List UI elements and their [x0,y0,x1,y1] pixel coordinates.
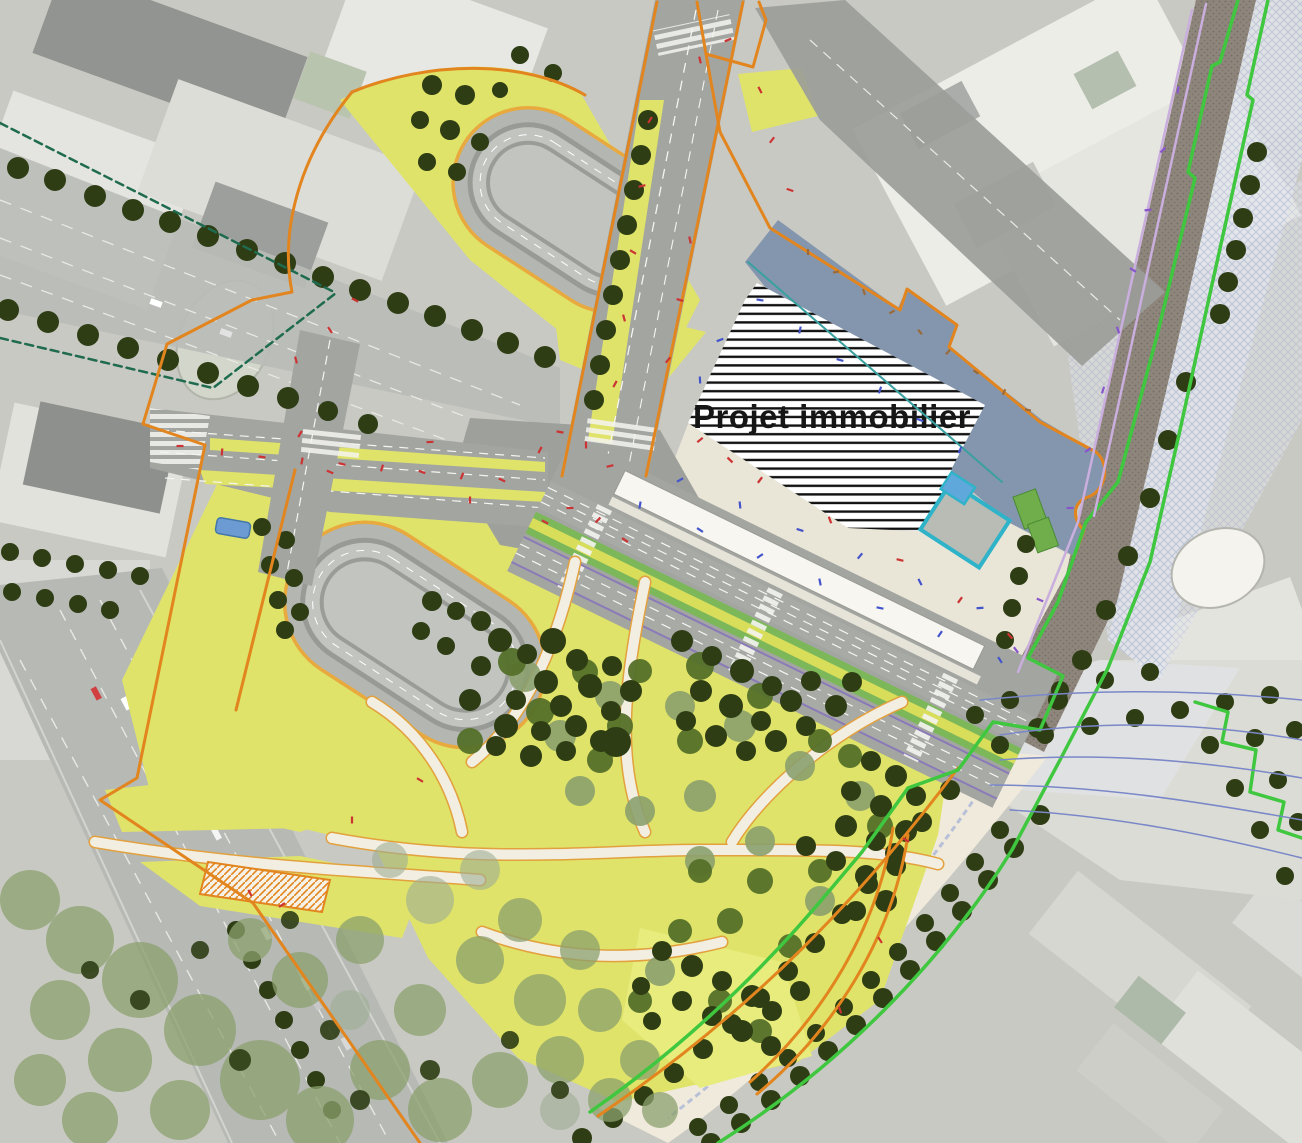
tree [0,870,60,930]
tree [790,981,810,1001]
tree [101,601,119,619]
tree [150,1080,210,1140]
tree [1218,272,1238,292]
tree [889,943,907,961]
tree [578,988,622,1032]
tree [44,169,66,191]
tree [511,46,529,64]
tree [620,680,642,702]
tree [596,320,616,340]
tree [861,751,881,771]
tree [471,611,491,631]
tree [447,602,465,620]
tree [281,911,299,929]
annotation-tick [585,441,587,448]
tree [7,157,29,179]
tree [422,591,442,611]
tree [631,145,651,165]
tree [492,82,508,98]
tree [916,914,934,932]
tree [1247,142,1267,162]
tree [672,991,692,1011]
tree [440,120,460,140]
tree [602,656,622,676]
tree [30,980,90,1040]
tree [498,898,542,942]
tree [422,75,442,95]
tree [358,414,378,434]
tree [46,906,114,974]
tree [534,670,558,694]
tree [762,676,782,696]
tree [705,725,727,747]
tree [472,1052,528,1108]
annotation-tick [426,441,433,444]
tree [785,751,815,781]
tree [69,595,87,613]
tree [550,695,572,717]
tree [624,180,644,200]
tree [747,868,773,894]
tree [540,628,566,654]
tree [237,375,259,397]
tree [578,674,602,698]
tree [456,936,504,984]
tree [642,1092,678,1128]
tree [731,1020,753,1042]
tree [130,990,150,1010]
tree [448,163,466,181]
tree [81,961,99,979]
tree [1226,240,1246,260]
tree [122,199,144,221]
tree [77,324,99,346]
tree [37,311,59,333]
tree [565,715,587,737]
tree [460,850,500,890]
tree [406,876,454,924]
tree [560,930,600,970]
tree [676,711,696,731]
tree [1141,663,1159,681]
tree [1171,701,1189,719]
tree [712,971,732,991]
tree [3,583,21,601]
tree [276,621,294,639]
tree [780,690,802,712]
tree [690,680,712,702]
tree [14,1054,66,1106]
tree [1017,535,1035,553]
tree [610,250,630,270]
tree [590,355,610,375]
tree [584,390,604,410]
tree [684,780,716,812]
tree [350,1090,370,1110]
tree [471,656,491,676]
urban-plan-map: Projet immobilier [0,0,1302,1143]
tree [236,239,258,261]
tree [841,781,861,801]
annotation-tick [566,507,573,509]
tree [488,628,512,652]
annotation-tick [469,497,471,504]
tree [996,631,1014,649]
tree [991,736,1009,754]
tree [412,622,430,640]
tree [632,977,650,995]
tree [689,1118,707,1136]
tree [551,1081,569,1099]
tree [1226,779,1244,797]
tree [1233,208,1253,228]
plan-canvas: Projet immobilier [0,0,1302,1143]
tree [1072,650,1092,670]
tree [387,292,409,314]
tree [1240,175,1260,195]
tree [628,659,652,683]
tree [84,185,106,207]
tree [862,971,880,989]
tree [459,689,481,711]
tree [536,1036,584,1084]
annotation-tick [1066,507,1073,509]
tree [1010,567,1028,585]
tree [842,672,862,692]
tree [796,716,816,736]
tree [457,728,483,754]
tree [372,842,408,878]
tree [681,955,703,977]
tree [471,133,489,151]
tree [671,630,693,652]
tree [285,569,303,587]
tree [486,736,506,756]
tree [565,776,595,806]
tree [1251,821,1269,839]
tree [855,865,877,887]
tree [966,706,984,724]
tree [520,745,542,767]
tree [1210,304,1230,324]
tree [312,266,334,288]
tree [720,1096,738,1114]
tree [131,567,149,585]
tree [652,941,672,961]
tree [531,721,551,741]
tree [702,646,722,666]
tree [838,744,862,768]
tree [941,884,959,902]
tree [275,1011,293,1029]
tree [506,690,526,710]
tree [643,1012,661,1030]
tree [33,549,51,567]
tree [601,701,621,721]
tree [688,859,712,883]
tree [269,591,287,609]
tree [1,543,19,561]
tree [1118,546,1138,566]
tree [36,589,54,607]
tree [566,649,588,671]
tree [66,555,84,573]
tree [164,994,236,1066]
tree [394,984,446,1036]
tree [99,561,117,579]
tree [336,916,384,964]
tree [88,1028,152,1092]
tree [253,518,271,536]
tree [534,346,556,368]
tree [220,1040,300,1120]
tree [668,919,692,943]
tree [677,728,703,754]
annotation-tick [807,249,809,255]
tree [1201,736,1219,754]
tree [1001,691,1019,709]
tree [408,1078,472,1142]
tree [736,741,756,761]
tree [494,714,518,738]
tree [796,836,816,856]
tree [514,974,566,1026]
tree [801,671,821,691]
tree [835,815,857,837]
tree [638,110,658,130]
tree [117,337,139,359]
tree [717,908,743,934]
tree [601,727,631,757]
tree [1096,600,1116,620]
tree [424,305,446,327]
tree [765,730,787,752]
tree [745,826,775,856]
tree [603,285,623,305]
tree [762,1001,782,1021]
tree [420,1060,440,1080]
tree [291,1041,309,1059]
tree [418,153,436,171]
tree [730,659,754,683]
tree [885,765,907,787]
tree [455,85,475,105]
tree [229,1049,251,1071]
tree [1140,488,1160,508]
tree [556,741,576,761]
tree [277,387,299,409]
tree [991,821,1009,839]
tree [625,796,655,826]
tree [437,637,455,655]
tree [719,694,743,718]
annotation-tick [699,376,702,383]
tree [291,603,309,621]
tree [318,401,338,421]
tree [966,853,984,871]
tree [411,111,429,129]
tree [1276,867,1294,885]
annotation-tick [177,445,184,447]
tree [517,644,537,664]
tree [461,319,483,341]
tree [1003,599,1021,617]
tree [846,901,866,921]
tree [228,918,272,962]
tree [497,332,519,354]
tree [826,851,846,871]
tree [191,941,209,959]
tree [825,695,847,717]
projet-immobilier-label: Projet immobilier [693,398,971,435]
annotation-tick [351,817,353,824]
tree [751,711,771,731]
tree [197,362,219,384]
tree [501,1031,519,1049]
tree [1261,686,1279,704]
tree [617,215,637,235]
